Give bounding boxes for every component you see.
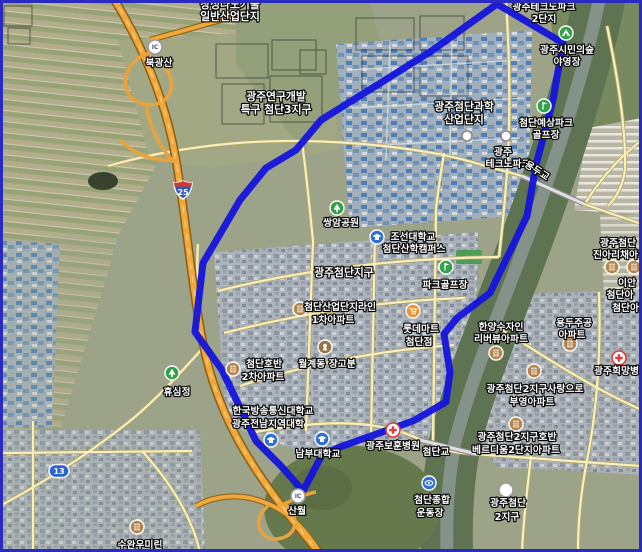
university-icon-nambu[interactable] xyxy=(315,432,329,446)
park-icon-ssangam[interactable] xyxy=(330,201,344,215)
label-cheomdan2-1: 광주첨단 xyxy=(490,496,526,509)
label-hope-hospital: 광주희망병원 xyxy=(594,364,642,377)
label-ne-apartment: 첨단아파트 xyxy=(612,301,642,314)
historic-tomb-icon[interactable] xyxy=(318,340,332,354)
ic-badge-text: IC xyxy=(152,44,159,51)
station-dot-icon-3[interactable] xyxy=(499,483,513,497)
station-dot-icon-1[interactable] xyxy=(462,131,472,141)
label-line-apt-1: 첨단산업단지라인 xyxy=(304,300,376,313)
campground-icon[interactable] xyxy=(559,26,573,40)
apartment-icon-suwan[interactable] xyxy=(130,520,144,534)
satellite-map[interactable]: IC IC 25 13 장성나노기술 일반산업단지 광주연구개발 특구 첨단3지… xyxy=(0,0,642,552)
label-buyeong-apt-1: 광주첨단2지구사랑으로 xyxy=(487,382,584,395)
route-shield-number: 25 xyxy=(177,188,189,197)
ic-badge-text: IC xyxy=(295,493,302,500)
label-jina-apt-1: 광주첨단 xyxy=(600,236,636,249)
station-dot-icon-2[interactable] xyxy=(501,131,511,141)
label-iaan-apt-2: 첨단아 xyxy=(606,288,633,301)
apartment-icon-jina-1[interactable] xyxy=(605,260,619,274)
pond xyxy=(88,172,118,190)
label-hoban-apt-2: 2차아파트 xyxy=(242,370,285,383)
apartment-icon-buyeong[interactable] xyxy=(527,364,541,378)
label-stadium-1: 첨단종합 xyxy=(414,493,450,506)
label-ic-bukgwangsan: 북광산 xyxy=(145,56,172,69)
label-nano-industrial-2: 일반산업단지 xyxy=(200,9,260,23)
label-rnd-zone-2: 특구 첨단3지구 xyxy=(241,102,312,116)
hospital-icon-bohun[interactable] xyxy=(386,423,400,437)
map-viewport[interactable]: IC IC 25 13 장성나노기술 일반산업단지 광주연구개발 특구 첨단3지… xyxy=(0,0,642,552)
apartment-icon-jina-2[interactable] xyxy=(627,260,641,274)
apartment-icon-hanyang[interactable] xyxy=(489,346,503,360)
stadium-icon[interactable] xyxy=(422,476,436,490)
label-knou-2: 광주전남지역대학 xyxy=(232,417,304,430)
label-gj-technopark-1: 광주 xyxy=(494,146,512,158)
ic-badge-bukgwangsan: IC xyxy=(148,40,162,54)
park-icon-hyusimjeong[interactable] xyxy=(165,366,179,380)
label-nambu-univ: 남부대학교 xyxy=(295,447,340,460)
label-hanyang-apt-2: 리버뷰아파트 xyxy=(474,332,528,345)
university-icon-chosun[interactable] xyxy=(370,230,384,244)
label-science-complex-1: 광주첨단과학 xyxy=(434,99,494,113)
label-ssangam-park: 쌍암공원 xyxy=(323,216,359,229)
label-wolgye-tomb: 월계동 장고분 xyxy=(298,357,356,370)
label-verdium-apt-1: 광주첨단2지구호반 xyxy=(478,430,557,443)
label-stadium-2: 운동장 xyxy=(416,506,443,519)
label-hanyang-apt-1: 한양수자인 xyxy=(478,320,523,333)
label-chosun-univ-1: 조선대학교 xyxy=(390,230,435,243)
label-buyeong-apt-2: 부영아파트 xyxy=(509,395,554,408)
label-rnd-zone-1: 광주연구개발 xyxy=(246,89,306,103)
label-line-apt-2: 1차아파트 xyxy=(312,313,355,326)
route-shield-13: 13 xyxy=(49,465,69,478)
label-parkgolf: 파크골프장 xyxy=(422,278,467,291)
university-icon-knou[interactable] xyxy=(264,433,278,447)
hospital-icon-hope[interactable] xyxy=(612,351,626,365)
label-technopark2-2: 2단지 xyxy=(532,12,557,25)
label-lottemart-2: 첨단점 xyxy=(405,335,432,348)
ic-badge-sanwol: IC xyxy=(291,489,305,503)
label-jina-apt-2: 진아리채아파트 xyxy=(593,248,642,261)
label-cheomdan2-2: 2지구 xyxy=(495,510,520,523)
label-north-parkgolf-1: 첨단예상파크 xyxy=(519,116,573,129)
golf-icon-north[interactable] xyxy=(537,99,551,113)
label-ic-sanwol: 산월 xyxy=(288,504,306,517)
label-bohun-hospital: 광주보훈병원 xyxy=(366,439,420,452)
label-lottemart-1: 롯데마트 xyxy=(403,322,439,335)
label-hyusimjeong: 휴심정 xyxy=(163,385,190,398)
label-yongdu-apt-2: 아파트 xyxy=(558,328,585,341)
label-iaan-apt-1: 이안 xyxy=(618,276,636,289)
label-science-complex-2: 산업단지 xyxy=(444,112,484,126)
mart-icon-lotte[interactable] xyxy=(406,304,420,318)
label-knou-1: 한국방송통신대학교 xyxy=(232,404,313,417)
label-verdium-apt-2: 베르디움2단지아파트 xyxy=(472,443,560,456)
route-shield-number: 13 xyxy=(53,467,64,476)
label-yongdu-apt-1: 용두주공 xyxy=(556,317,592,329)
apartment-icon-verdium[interactable] xyxy=(509,417,523,431)
label-citizens-forest-1: 광주시민의숲 xyxy=(540,43,594,56)
golf-icon-parkgolf[interactable] xyxy=(439,260,453,274)
label-chosun-univ-2: 첨단산학캠퍼스 xyxy=(382,242,445,255)
label-cheomdan-bridge: 첨단교 xyxy=(422,445,449,458)
apartment-icon-hoban[interactable] xyxy=(226,362,240,376)
label-north-parkgolf-2: 골프장 xyxy=(532,128,559,141)
label-citizens-forest-2: 야영장 xyxy=(553,55,580,68)
label-hoban-apt-1: 첨단호반 xyxy=(246,357,282,370)
label-cheomdan-district: 광주첨단지구 xyxy=(314,265,374,279)
